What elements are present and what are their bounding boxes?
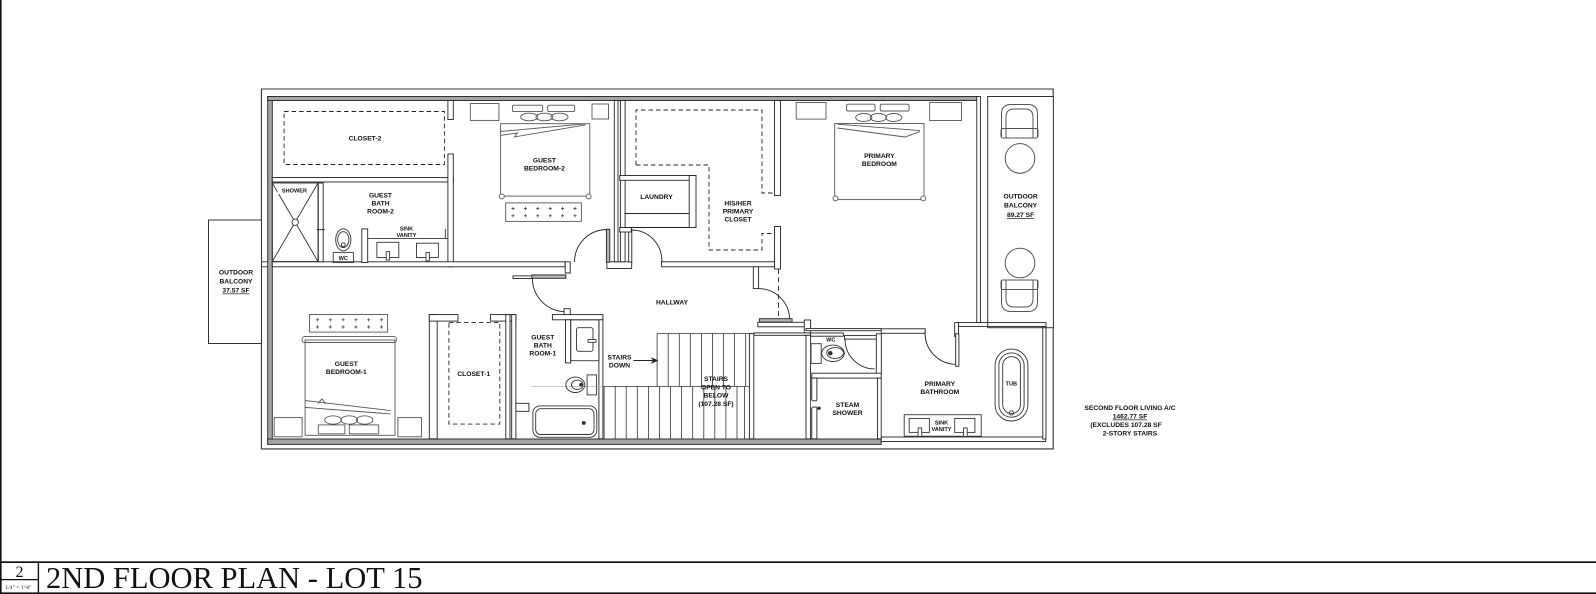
svg-text:BATH: BATH (534, 343, 552, 350)
svg-text:GUEST: GUEST (335, 361, 359, 368)
svg-text:ROOM-1: ROOM-1 (529, 351, 556, 358)
svg-text:CLOSET-2: CLOSET-2 (349, 136, 382, 143)
svg-text:STEAM: STEAM (836, 402, 860, 409)
svg-text:SECOND FLOOR LIVING A/C: SECOND FLOOR LIVING A/C (1084, 405, 1175, 412)
svg-text:STAIRS: STAIRS (607, 355, 632, 362)
svg-text:HIS/HER: HIS/HER (724, 201, 751, 208)
svg-text:BALCONY: BALCONY (1004, 203, 1038, 210)
svg-text:GUEST: GUEST (531, 335, 555, 342)
svg-text:SHOWER: SHOWER (282, 189, 307, 195)
svg-text:BEDROOM-2: BEDROOM-2 (524, 166, 565, 173)
svg-text:BEDROOM: BEDROOM (862, 161, 897, 168)
svg-text:VANITY: VANITY (396, 233, 416, 239)
svg-text:2: 2 (16, 564, 24, 581)
svg-text:TUB: TUB (1006, 382, 1018, 388)
svg-text:89.27 SF: 89.27 SF (1007, 212, 1034, 219)
svg-text:PRIMARY: PRIMARY (925, 381, 956, 388)
svg-text:OUTDOOR: OUTDOOR (1004, 194, 1038, 201)
svg-text:SINK: SINK (400, 227, 413, 233)
svg-text:GUEST: GUEST (533, 158, 557, 165)
svg-text:PRIMARY: PRIMARY (864, 153, 895, 160)
svg-text:STAIRS: STAIRS (704, 376, 729, 383)
svg-text:OUTDOOR: OUTDOOR (219, 270, 253, 277)
svg-text:VANITY: VANITY (931, 427, 951, 433)
svg-text:1/4" = 1'-0": 1/4" = 1'-0" (5, 585, 31, 591)
svg-text:BELOW: BELOW (704, 393, 730, 400)
svg-text:DOWN: DOWN (609, 363, 630, 370)
svg-text:WC: WC (339, 256, 348, 262)
svg-text:CLOSET: CLOSET (724, 217, 752, 224)
svg-text:GUEST: GUEST (369, 193, 393, 200)
svg-text:2ND FLOOR PLAN - LOT 15: 2ND FLOOR PLAN - LOT 15 (46, 561, 422, 594)
svg-text:SINK: SINK (935, 421, 948, 427)
svg-text:HALLWAY: HALLWAY (656, 300, 689, 307)
svg-text:37.57 SF: 37.57 SF (222, 288, 249, 295)
svg-text:2-STORY STAIRS: 2-STORY STAIRS (1103, 431, 1158, 438)
svg-text:ROOM-2: ROOM-2 (367, 209, 394, 216)
svg-text:(EXCLUDES 107.28 SF: (EXCLUDES 107.28 SF (1090, 422, 1161, 429)
svg-text:OPEN TO: OPEN TO (701, 384, 731, 391)
svg-text:LAUNDRY: LAUNDRY (640, 194, 673, 201)
svg-text:WC: WC (826, 337, 835, 343)
svg-text:BEDROOM-1: BEDROOM-1 (326, 369, 367, 376)
svg-text:PRIMARY: PRIMARY (723, 209, 754, 216)
svg-text:BATH: BATH (371, 201, 389, 208)
svg-text:1462.77 SF: 1462.77 SF (1113, 414, 1148, 421)
svg-text:BATHROOM: BATHROOM (920, 389, 959, 396)
svg-text:(107.28 SF): (107.28 SF) (698, 401, 733, 408)
svg-text:BALCONY: BALCONY (219, 279, 253, 286)
svg-text:CLOSET-1: CLOSET-1 (457, 371, 490, 378)
svg-text:SHOWER: SHOWER (832, 410, 862, 417)
